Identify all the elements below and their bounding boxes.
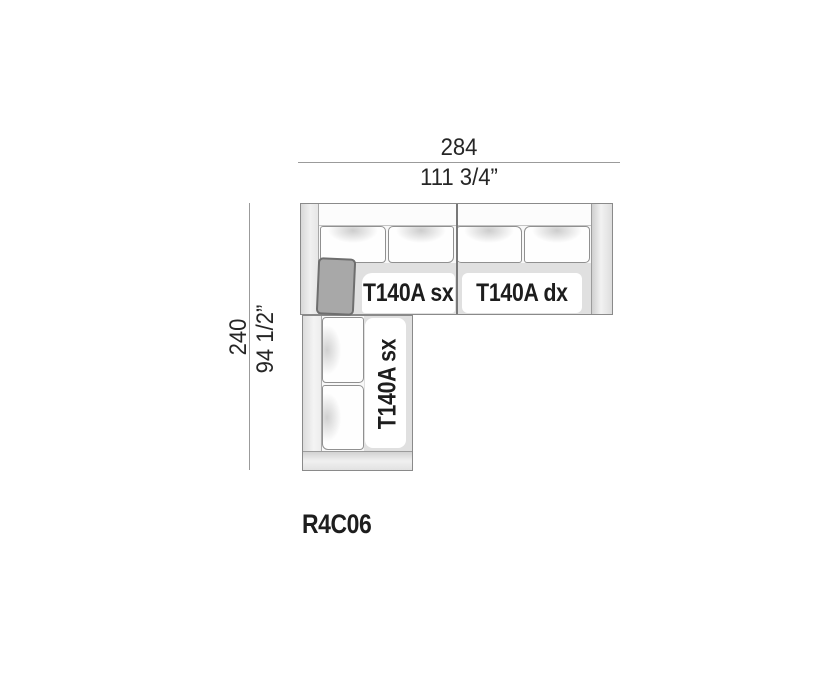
module-label-top-left: T140A sx xyxy=(363,279,453,308)
back-cushion xyxy=(388,226,454,263)
module-label-top-right: T140A dx xyxy=(476,279,568,308)
sofa-row-top: T140A sx T140A dx xyxy=(300,203,613,315)
backrest-top-band xyxy=(319,204,591,226)
back-cushion-column xyxy=(322,317,364,450)
bottom-armrest-panel xyxy=(303,451,412,470)
corner-accent-pillow xyxy=(316,257,356,316)
seat-cushion-top-left: T140A sx xyxy=(362,273,455,313)
sofa-spec-sheet: 284 111 3/4” 240 94 1/2” T140A sx T140A … xyxy=(0,0,840,679)
seat-cushion-top-right: T140A dx xyxy=(462,273,582,313)
depth-dimension-cm: 240 xyxy=(227,282,251,392)
back-cushion-row xyxy=(319,226,591,263)
sofa-column-left: T140A sx xyxy=(302,315,413,471)
seat-area-row: T140A sx T140A dx xyxy=(319,263,591,314)
width-dimension-line xyxy=(298,162,620,163)
back-cushion xyxy=(524,226,590,263)
back-cushion xyxy=(322,317,364,383)
module-seat-top-right: T140A dx xyxy=(458,263,591,314)
depth-dimension-inches: 94 1/2” xyxy=(254,284,278,394)
right-armrest-panel xyxy=(591,204,612,314)
column-backrest-panel xyxy=(303,316,322,451)
module-divider-line xyxy=(456,204,458,314)
model-code: R4C06 xyxy=(302,511,371,538)
back-cushion xyxy=(322,385,364,451)
back-cushion xyxy=(456,226,522,263)
module-seat-column: T140A sx xyxy=(364,316,412,451)
module-label-column: T140A sx xyxy=(374,338,403,428)
width-dimension-cm: 284 xyxy=(311,136,607,160)
width-dimension-inches: 111 3/4” xyxy=(311,166,607,190)
